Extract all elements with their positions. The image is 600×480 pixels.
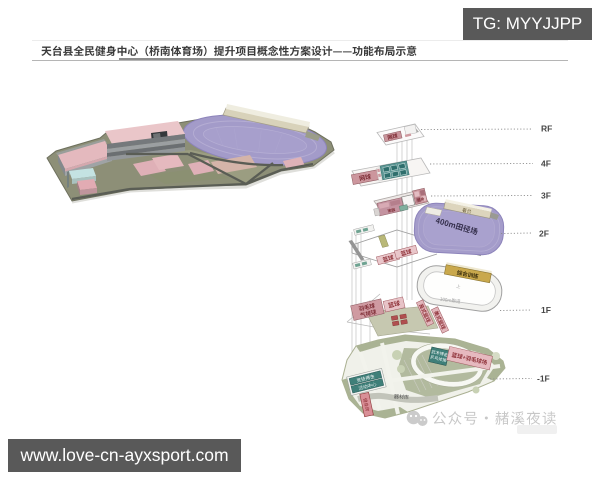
svg-text:2F: 2F (539, 229, 549, 239)
svg-text:RF: RF (541, 124, 552, 134)
svg-text:1F: 1F (541, 305, 551, 315)
svg-text:3F: 3F (541, 191, 551, 201)
svg-text:-1F: -1F (537, 374, 550, 384)
svg-text:4F: 4F (541, 159, 551, 169)
